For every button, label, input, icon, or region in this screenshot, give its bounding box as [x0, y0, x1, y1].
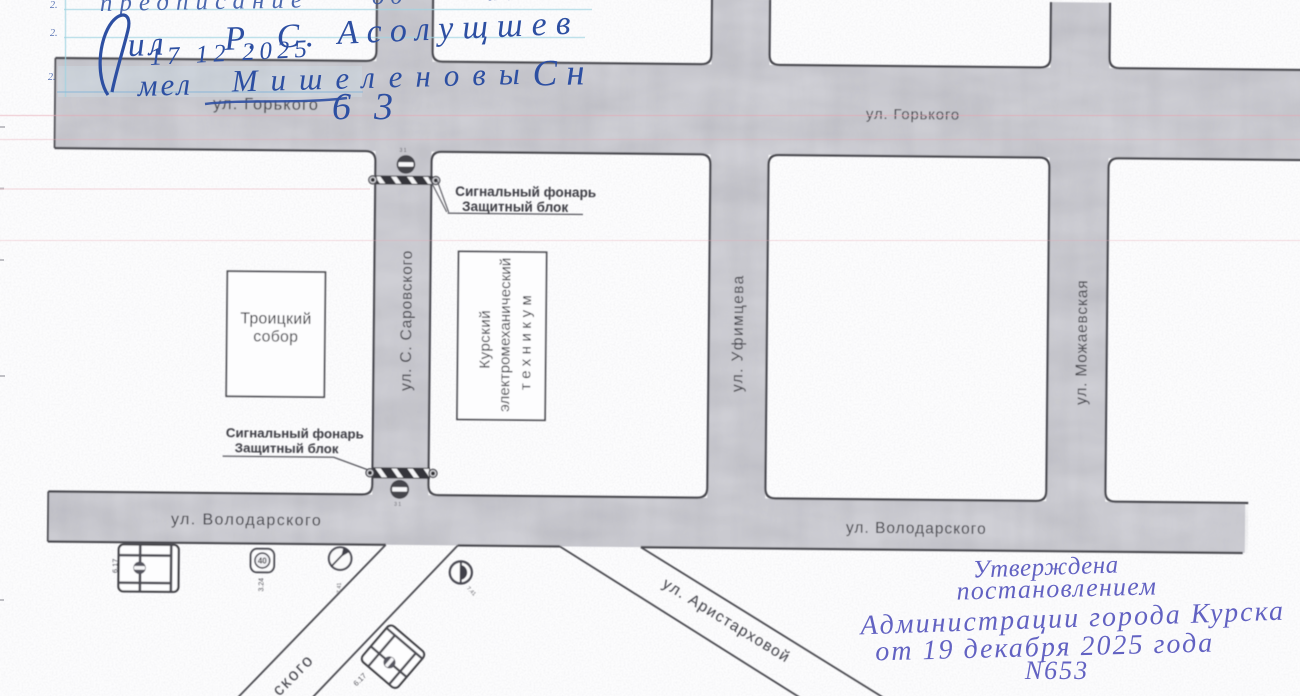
svg-text:6.17: 6.17 [111, 558, 120, 573]
svg-text:ул. Можаевская: ул. Можаевская [1073, 279, 1091, 405]
svg-text:Сигнальный фонарь: Сигнальный фонарь [455, 184, 596, 200]
svg-text:Защитный блок: Защитный блок [235, 440, 339, 456]
svg-text:2.: 2. [50, 28, 58, 39]
svg-text:ул. С. Саровского: ул. С. Саровского [398, 250, 416, 391]
svg-text:ул. Горького: ул. Горького [213, 95, 319, 114]
svg-text:ул. Володарского: ул. Володарского [846, 520, 987, 538]
svg-text:2.: 2. [50, 0, 58, 11]
svg-text:ул. Володарского: ул. Володарского [171, 511, 322, 529]
svg-text:Защитный блок: Защитный блок [462, 199, 568, 215]
svg-text:40: 40 [258, 557, 268, 566]
svg-text:3 1: 3 1 [400, 148, 407, 154]
svg-text:мел: мел [136, 67, 193, 103]
svg-text:Сигнальный фонарь: Сигнальный фонарь [226, 425, 364, 441]
svg-text:7.41: 7.41 [337, 583, 343, 594]
svg-text:собор: собор [253, 328, 298, 345]
svg-text:3 1: 3 1 [394, 502, 401, 508]
svg-text:63: 63 [332, 86, 416, 128]
svg-text:Сн: Сн [532, 52, 594, 95]
svg-text:об: об [372, 0, 409, 10]
svg-text:Троицкий: Троицкий [240, 310, 311, 328]
svg-text:электромеханический: электромеханический [496, 258, 514, 412]
svg-text:ул. Уфимцева: ул. Уфимцева [729, 274, 747, 392]
svg-text:техникум: техникум [517, 291, 535, 390]
svg-text:N653: N653 [1024, 656, 1089, 685]
svg-text:2.: 2. [48, 72, 56, 83]
svg-text:3.24: 3.24 [258, 578, 265, 592]
svg-text:Курский: Курский [476, 310, 494, 369]
